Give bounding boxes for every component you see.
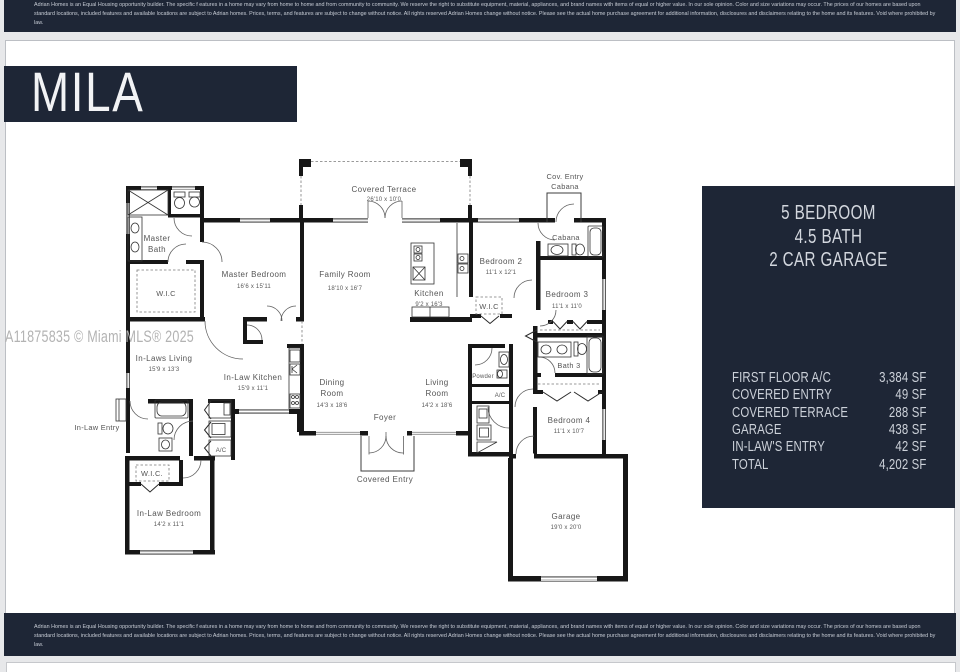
svg-text:18'10 x 16'7: 18'10 x 16'7 (328, 286, 363, 292)
svg-text:Master Bedroom: Master Bedroom (222, 270, 287, 279)
svg-text:15'9 x 13'3: 15'9 x 13'3 (149, 367, 180, 373)
svg-text:11'1 x 11'0: 11'1 x 11'0 (552, 304, 582, 310)
svg-text:9'2 x 16'3: 9'2 x 16'3 (415, 302, 443, 308)
svg-text:A11875835 © Miami MLS® 2025: A11875835 © Miami MLS® 2025 (5, 328, 194, 346)
svg-text:W.I.C: W.I.C (479, 302, 499, 311)
svg-text:16'6 x 15'11: 16'6 x 15'11 (237, 284, 271, 290)
svg-text:Room: Room (426, 389, 449, 398)
svg-text:19'0 x 20'0: 19'0 x 20'0 (551, 525, 582, 531)
svg-text:Powder: Powder (472, 374, 494, 380)
svg-text:W.I.C.: W.I.C. (141, 469, 163, 478)
svg-text:Dining: Dining (319, 378, 344, 387)
svg-text:Cabana: Cabana (551, 182, 579, 191)
svg-text:Family Room: Family Room (319, 270, 371, 279)
svg-text:Bedroom 4: Bedroom 4 (548, 416, 591, 425)
svg-text:Covered Terrace: Covered Terrace (352, 185, 417, 194)
svg-text:Master: Master (144, 234, 171, 243)
svg-text:Bath: Bath (148, 245, 166, 254)
svg-text:Bedroom 2: Bedroom 2 (480, 257, 523, 266)
svg-text:Foyer: Foyer (374, 413, 396, 422)
svg-text:In-Law Kitchen: In-Law Kitchen (224, 373, 283, 382)
svg-text:Kitchen: Kitchen (414, 289, 443, 298)
svg-text:14'2 x 11'1: 14'2 x 11'1 (154, 522, 185, 528)
svg-text:14'3 x 18'6: 14'3 x 18'6 (317, 403, 348, 409)
svg-text:A/C: A/C (216, 448, 227, 454)
svg-text:Bath 3: Bath 3 (557, 361, 580, 370)
svg-text:Cov. Entry: Cov. Entry (547, 172, 584, 181)
svg-text:11'1 x 12'1: 11'1 x 12'1 (486, 270, 517, 276)
svg-text:Living: Living (425, 378, 448, 387)
svg-text:11'1 x 10'7: 11'1 x 10'7 (554, 429, 585, 435)
svg-text:Garage: Garage (551, 512, 580, 521)
svg-text:Room: Room (321, 389, 344, 398)
svg-text:14'2 x 18'6: 14'2 x 18'6 (422, 403, 453, 409)
svg-text:A/C: A/C (495, 393, 506, 399)
svg-text:W.I.C: W.I.C (156, 289, 176, 298)
svg-text:Cabana: Cabana (552, 233, 580, 242)
svg-text:15'9 x 11'1: 15'9 x 11'1 (238, 386, 269, 392)
svg-text:In-Laws Living: In-Laws Living (136, 354, 193, 363)
svg-text:Bedroom 3: Bedroom 3 (546, 290, 589, 299)
svg-text:In-Law Entry: In-Law Entry (74, 423, 119, 432)
svg-text:In-Law Bedroom: In-Law Bedroom (137, 509, 201, 518)
svg-text:26'10 x 10'0: 26'10 x 10'0 (367, 197, 402, 203)
svg-text:Covered Entry: Covered Entry (357, 475, 413, 484)
